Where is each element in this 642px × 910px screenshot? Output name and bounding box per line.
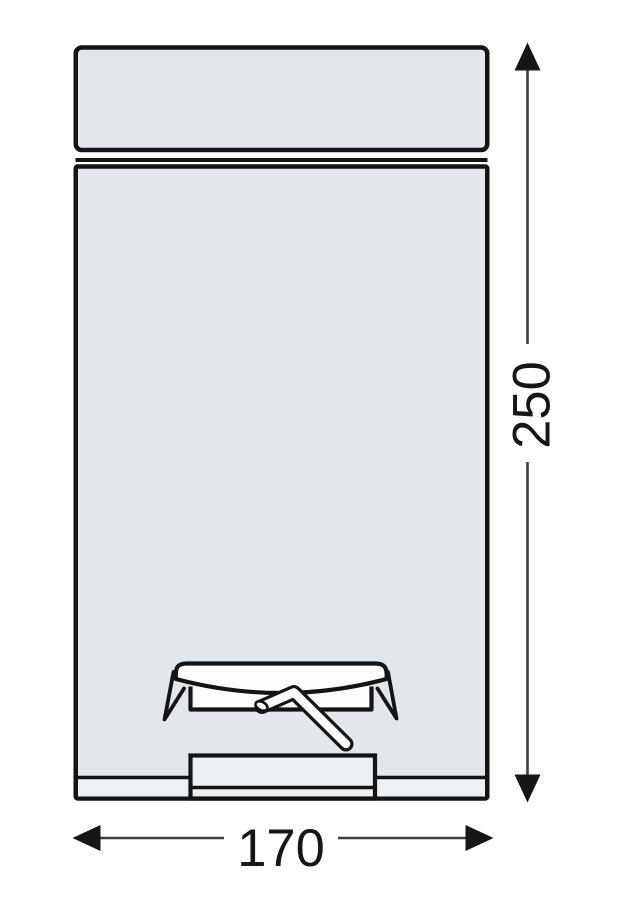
drawing-canvas: 250 170 xyxy=(0,0,642,910)
height-dimension-label: 250 xyxy=(503,361,562,449)
height-arrowhead-up-icon xyxy=(515,43,541,71)
pedal-base xyxy=(191,756,376,799)
width-dimension-label: 170 xyxy=(237,819,325,878)
height-arrowhead-down-icon xyxy=(515,775,541,803)
bin-lid xyxy=(76,48,488,151)
height-dimension: 250 xyxy=(503,43,562,803)
width-arrowhead-left-icon xyxy=(73,825,101,851)
width-arrowhead-right-icon xyxy=(466,825,494,851)
width-dimension: 170 xyxy=(73,819,494,878)
pedal-bin-dimension-drawing: 250 170 xyxy=(0,0,642,910)
